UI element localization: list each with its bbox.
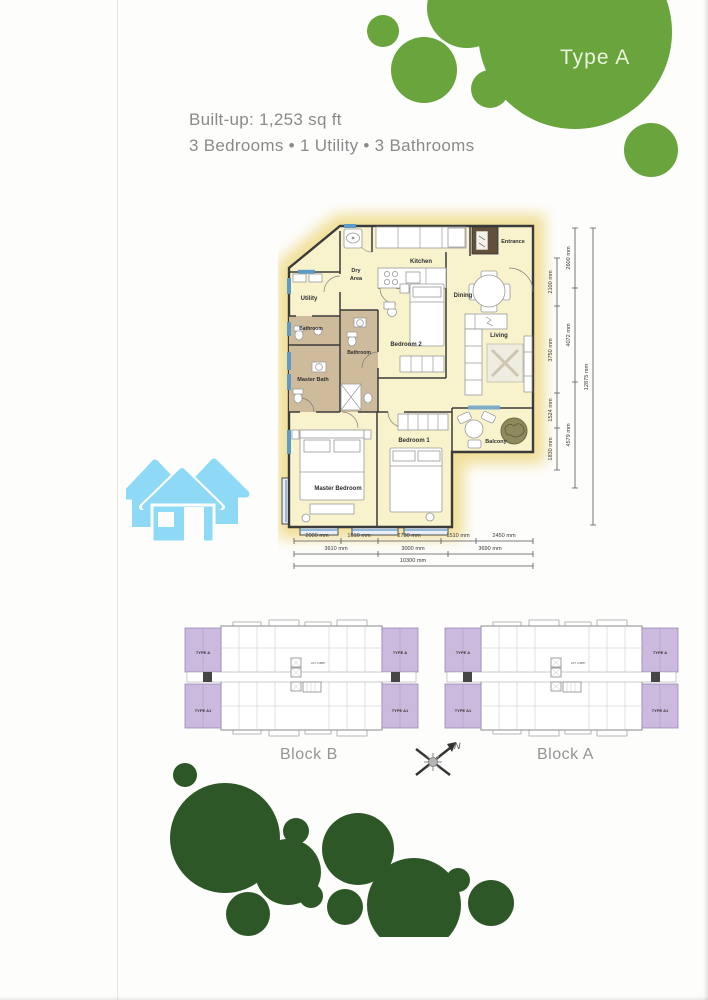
block-a-lift-lobby: LIFT LOBBY [571,661,586,665]
page-crease [117,0,118,1000]
dim-b2-0: 3610 mm [324,546,348,552]
dim-b1-0: 2000 mm [305,533,329,539]
block-a-label: Block A [537,746,594,764]
green-circles-top [360,0,708,185]
dim-right-inner-1: 3750 mm [548,338,554,362]
house-door [184,507,204,542]
block-a-type-a1-right: TYPE A1 [652,708,669,713]
dim-right-mid-2: 4579 mm [566,423,572,447]
dims-right: 2100 mm 3750 mm 1524 mm 1830 mm 2600 mm … [548,228,596,525]
label-balcony: Balcony [485,439,507,445]
label-master-bath: Master Bath [297,377,329,383]
dim-right-inner-2: 1524 mm [548,398,554,422]
dim-right-inner-0: 2100 mm [548,270,554,294]
dim-b1-1: 1610 mm [347,533,371,539]
label-bedroom1: Bedroom 1 [398,438,430,444]
label-entrance: Entrance [501,239,525,245]
green-circle [327,889,363,925]
block-b-type-a1-right: TYPE A1 [392,708,409,713]
label-dry-1: Dry [351,268,361,274]
block-a-type-a1-left: TYPE A1 [455,708,472,713]
green-circle [391,37,457,103]
compass-north-label: N [454,741,461,751]
label-bathroom-a: Bathroom [299,326,323,332]
label-dry-2: Area [350,276,363,282]
dim-right-mid-1: 4072 mm [566,323,572,347]
dim-right-total: 12875 mm [584,363,590,390]
block-b-type-a-left: TYPE A [196,650,210,655]
block-b-lift-lobby: LIFT LOBBY [311,661,326,665]
green-circle [468,880,514,926]
dim-right-mid-0: 2600 mm [566,246,572,270]
block-b-type-a-right: TYPE A [393,650,407,655]
block-a-type-a-right: TYPE A [653,650,667,655]
washing-machine [344,229,362,248]
label-bedroom2: Bedroom 2 [390,342,422,348]
dim-b2-1: 3000 mm [401,546,425,552]
block-b-plan: LIFT LOBBY TYPE A TYPE A1 TYPE A TYPE A1 [183,618,420,738]
dim-b3-total: 10300 mm [400,558,427,564]
label-master-bedroom: Master Bedroom [314,486,361,492]
houses-logo-icon [126,452,254,547]
page-edge-right [703,0,708,1000]
block-a-plan: LIFT LOBBY TYPE A TYPE A1 TYPE A TYPE A1 [443,618,680,738]
green-circle [173,763,197,787]
floorplan: Entrance Kitchen Dry Area Dining Utility… [278,203,612,585]
label-bathroom-b: Bathroom [347,350,371,356]
label-living: Living [490,333,508,339]
page-title: Type A [560,46,630,70]
green-circles-bottom [160,752,530,957]
dim-b2-2: 3690 mm [478,546,502,552]
bedroom1-furniture [390,414,448,521]
page-edge-bottom [0,996,708,1000]
green-circle [624,123,678,177]
dim-b1-4: 2450 mm [492,533,516,539]
block-a-type-a-left: TYPE A [456,650,470,655]
label-utility: Utility [301,296,318,302]
dim-b1-2: 2730 mm [397,533,421,539]
green-circle [226,892,270,936]
block-b-type-a1-left: TYPE A1 [195,708,212,713]
block-b-shapes: LIFT LOBBY [185,620,418,736]
house-window [158,512,174,527]
green-circle [299,884,323,908]
unit-specs: Built-up: 1,253 sq ft 3 Bedrooms • 1 Uti… [189,110,474,156]
green-circle [367,15,399,47]
brochure-page: Type A Built-up: 1,253 sq ft 3 Bedrooms … [0,0,708,1000]
label-kitchen: Kitchen [410,259,432,265]
block-a-shapes: LIFT LOBBY [445,620,678,736]
dim-b1-3: 1510 mm [446,533,470,539]
green-circle [446,868,470,892]
circle-flat-cut [362,937,466,957]
built-up-text: Built-up: 1,253 sq ft [189,110,474,130]
label-dining: Dining [454,293,473,299]
entrance-cabinet [472,227,498,254]
features-text: 3 Bedrooms • 1 Utility • 3 Bathrooms [189,136,474,156]
dim-right-inner-3: 1830 mm [548,437,554,461]
